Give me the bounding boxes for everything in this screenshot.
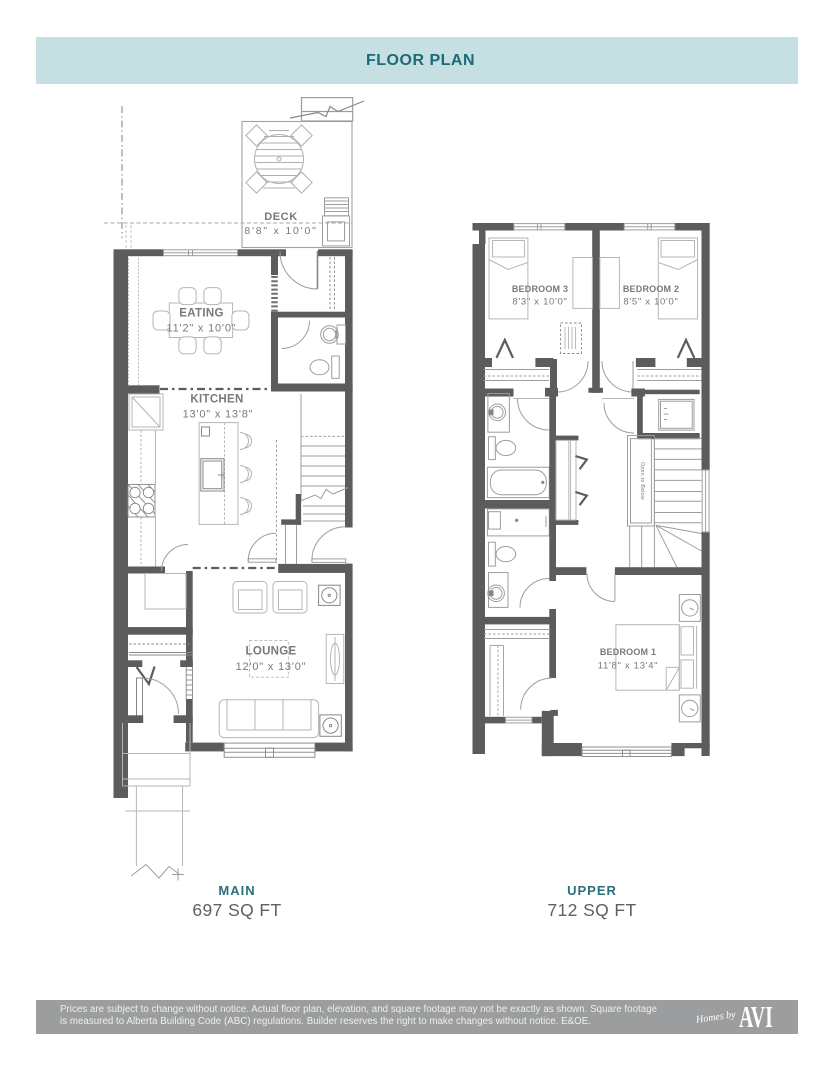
svg-text:13'0" x 13'8": 13'0" x 13'8" [183,408,254,420]
svg-text:11'2" x 10'0": 11'2" x 10'0" [167,323,237,335]
svg-text:BEDROOM 1: BEDROOM 1 [600,647,656,657]
svg-text:8'8" x 10'0": 8'8" x 10'0" [244,225,317,237]
svg-text:LOUNGE: LOUNGE [246,646,297,658]
svg-text:11'8" x 13'4": 11'8" x 13'4" [598,661,659,672]
svg-text:DECK: DECK [264,211,298,223]
svg-text:BEDROOM 2: BEDROOM 2 [623,284,679,294]
svg-text:8'3" x 10'0": 8'3" x 10'0" [512,297,567,308]
svg-text:Open to Below: Open to Below [639,462,645,500]
svg-text:12'0" x 13'0": 12'0" x 13'0" [236,661,307,673]
svg-text:BEDROOM 3: BEDROOM 3 [512,284,568,294]
svg-text:EATING: EATING [179,308,223,320]
svg-text:8'5" x 10'0": 8'5" x 10'0" [623,297,678,308]
svg-text:KITCHEN: KITCHEN [190,394,243,406]
